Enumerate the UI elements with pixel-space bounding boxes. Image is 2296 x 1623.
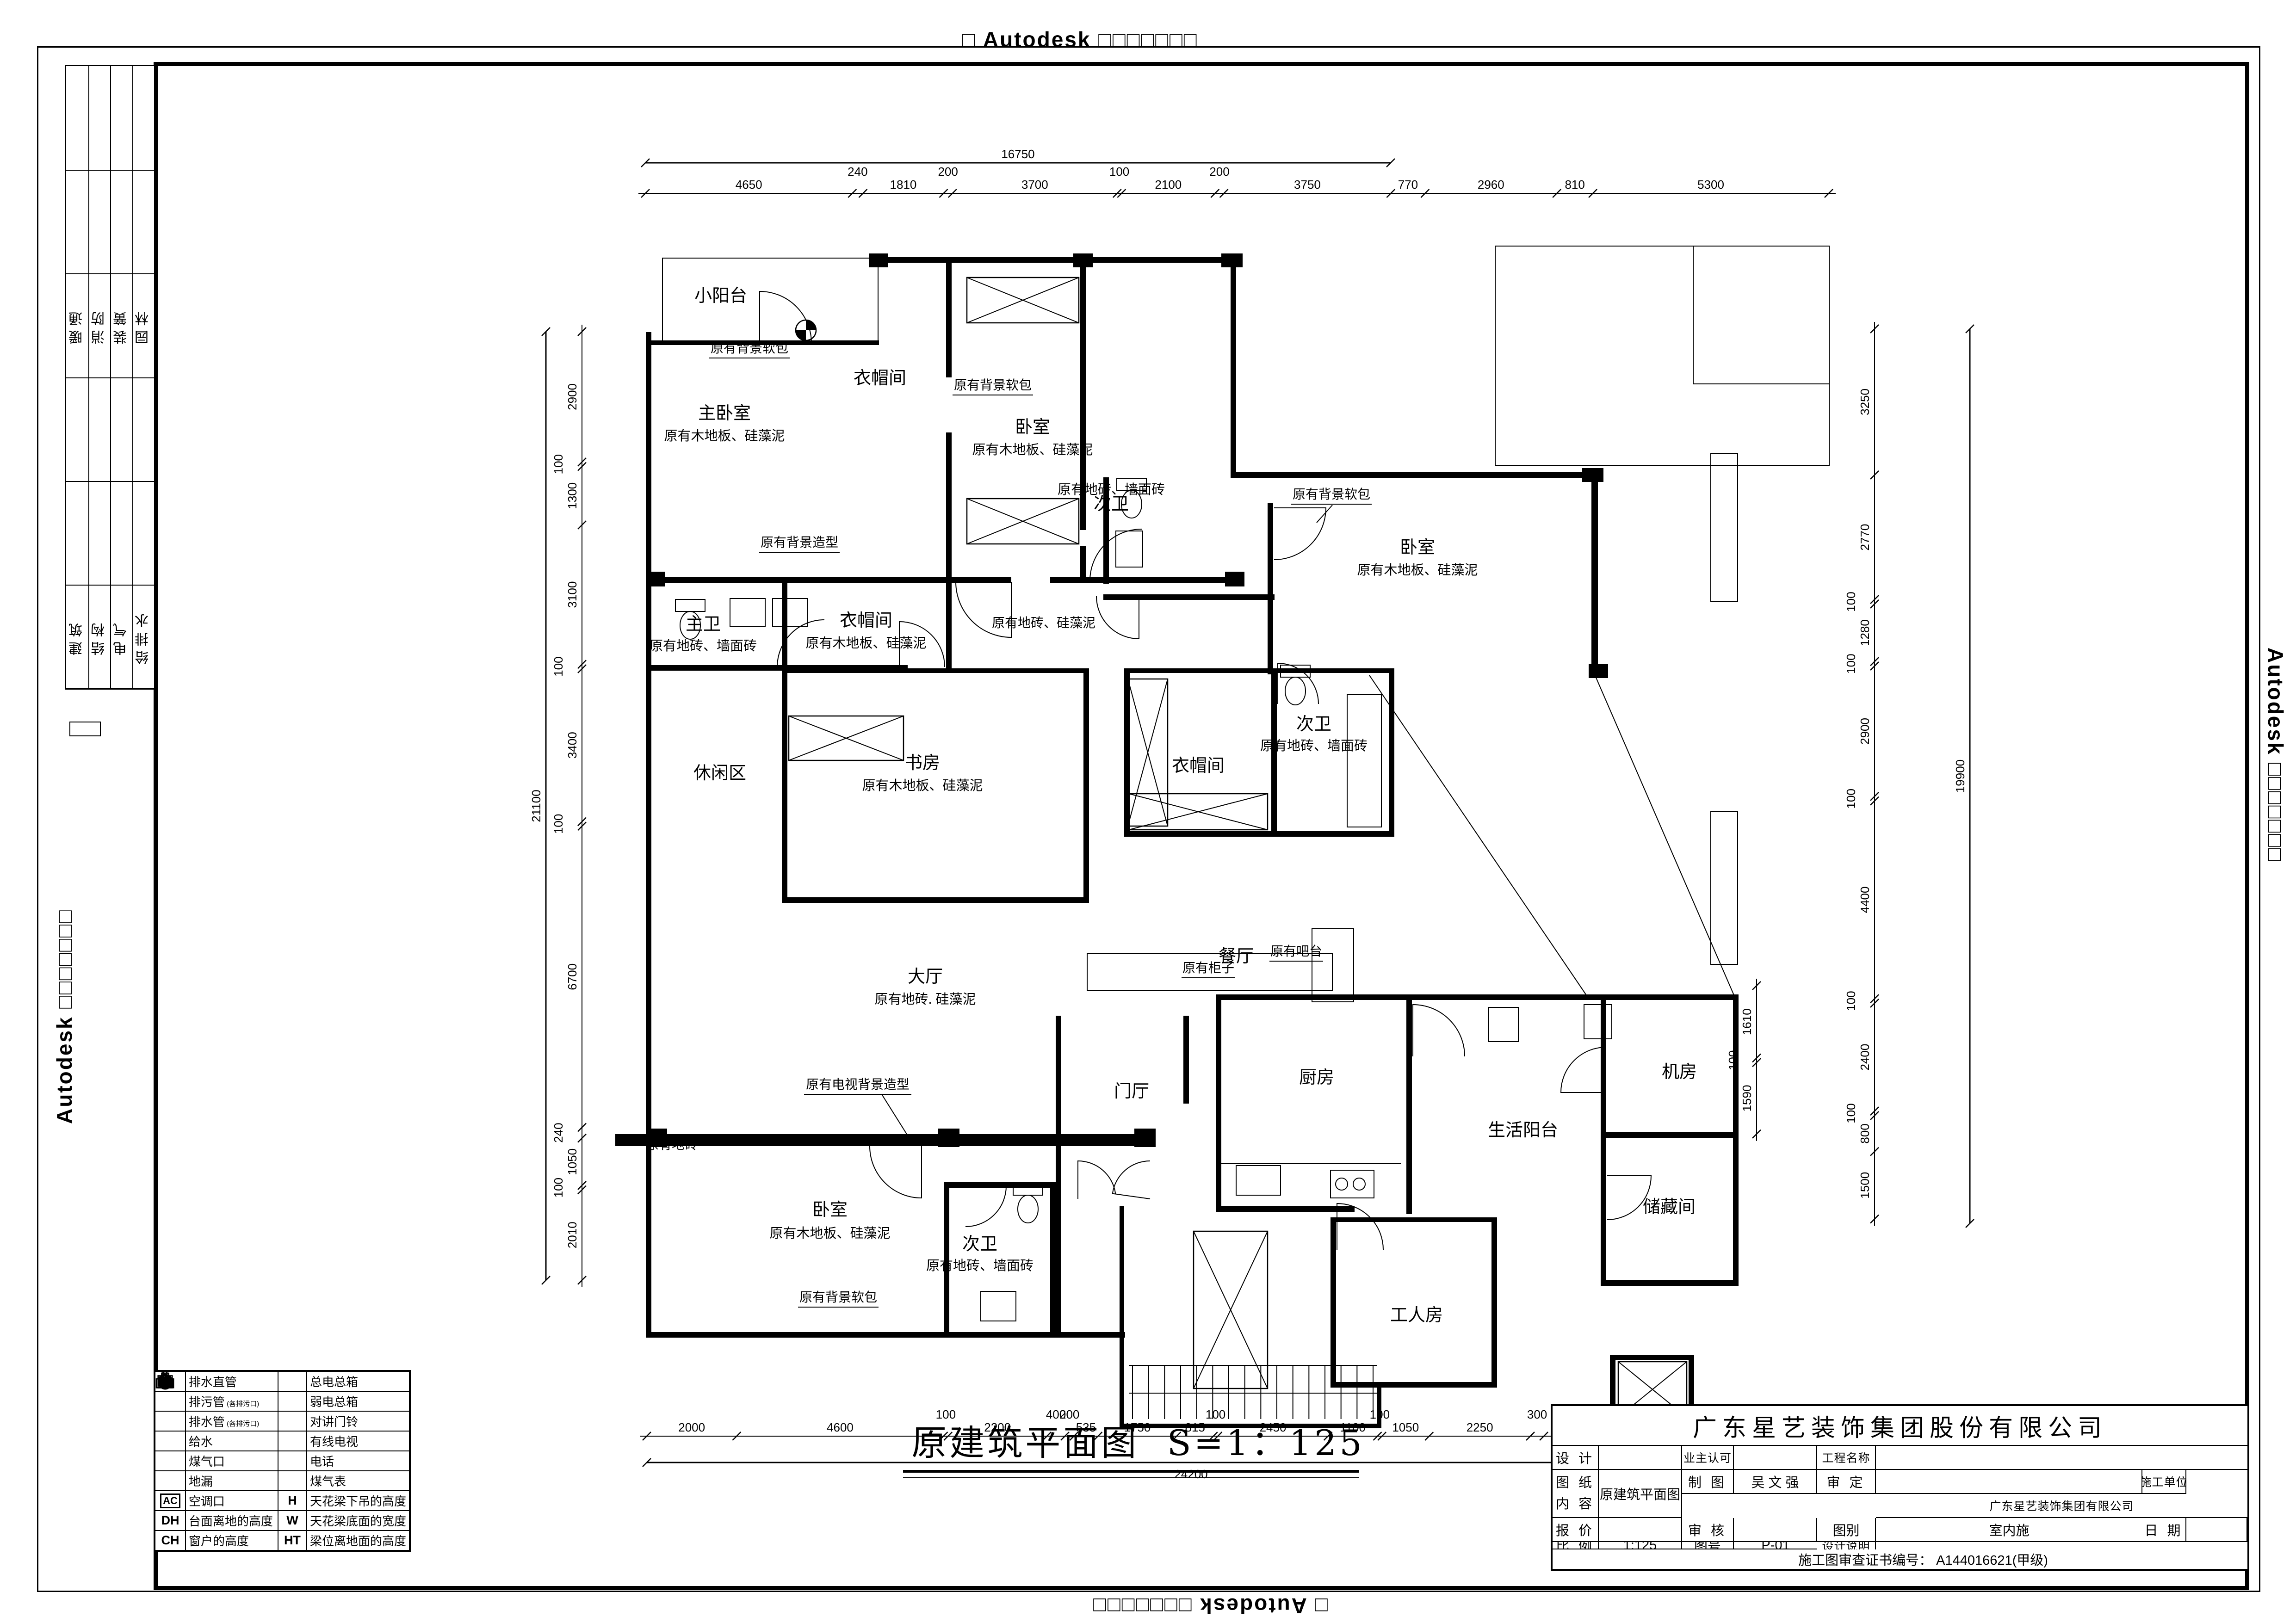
gasmeter-legend-icon bbox=[278, 1471, 307, 1491]
category-label: 图别 bbox=[1817, 1518, 1876, 1542]
wall bbox=[1589, 664, 1608, 678]
dim-value: 2100 bbox=[1155, 178, 1182, 191]
floordrain-legend-icon bbox=[155, 1471, 186, 1491]
dim-value: 1500 bbox=[1858, 1172, 1872, 1199]
wall bbox=[1050, 577, 1238, 583]
plan-line bbox=[1594, 673, 1735, 997]
dim-value: 3750 bbox=[1294, 178, 1321, 191]
room-label: 小阳台 bbox=[694, 286, 747, 306]
wall bbox=[1601, 1132, 1739, 1138]
dim-value: 300 bbox=[1527, 1407, 1547, 1421]
title-block: 广东星艺装饰集团股份有限公司 设 计 业主认可 工程名称 制 图 吴 文 强 审… bbox=[1551, 1404, 2249, 1571]
room-label: 卧室 bbox=[1015, 418, 1050, 437]
dim-value: 810 bbox=[1565, 178, 1584, 191]
thin-structure bbox=[1236, 1166, 1281, 1195]
date-label: 日 期 bbox=[2142, 1518, 2186, 1542]
dim-value: 1810 bbox=[890, 178, 917, 191]
category-value: 室内施 bbox=[1876, 1518, 2142, 1542]
legend-label: 台面离地的高度 bbox=[186, 1511, 278, 1530]
legend-label: 天花梁底面的宽度 bbox=[307, 1511, 410, 1530]
dim-total-value: 16750 bbox=[1001, 147, 1034, 161]
wall bbox=[1183, 1016, 1189, 1104]
door-swing bbox=[870, 1146, 922, 1198]
legend-label: 天花梁下吊的高度 bbox=[307, 1491, 410, 1511]
sheet-content-label: 图 纸内 容 bbox=[1553, 1470, 1599, 1518]
wall bbox=[946, 583, 952, 671]
dim-value: 2960 bbox=[1478, 178, 1504, 191]
toilet-tank bbox=[675, 599, 705, 611]
dim-value: 100 bbox=[1844, 1103, 1858, 1123]
room-finish-label: 原有地砖、墙面砖 bbox=[650, 638, 757, 654]
wall bbox=[1389, 668, 1394, 836]
legend-label: 煤气口 bbox=[186, 1451, 278, 1471]
dim-value: 3100 bbox=[565, 581, 579, 608]
dim-value: 3400 bbox=[565, 732, 579, 759]
ch-legend-icon: CH bbox=[155, 1530, 186, 1551]
wall bbox=[1331, 1382, 1497, 1388]
dim-value: 5300 bbox=[1697, 178, 1724, 191]
dim-value: 2900 bbox=[1858, 718, 1872, 745]
room-finish-label: 原有木地板、硅藻泥 bbox=[972, 442, 1093, 457]
room-label: 厨房 bbox=[1299, 1068, 1334, 1087]
room-label: 卧室 bbox=[812, 1200, 848, 1220]
catv-legend-icon bbox=[278, 1431, 307, 1451]
dim-value: 1610 bbox=[1740, 1008, 1754, 1035]
wall bbox=[1406, 994, 1412, 1214]
dim-value: 2770 bbox=[1858, 524, 1872, 551]
thin-structure bbox=[981, 1291, 1016, 1321]
room-finish-label: 原有地砖、墙面砖 bbox=[1058, 482, 1165, 497]
wall bbox=[938, 1129, 959, 1147]
approve-value bbox=[1876, 1470, 2142, 1494]
quote-label: 报 价 bbox=[1553, 1518, 1599, 1542]
pipe2-legend-icon bbox=[155, 1391, 186, 1411]
dh-legend-icon: DH bbox=[155, 1511, 186, 1530]
room-label: 衣帽间 bbox=[854, 369, 906, 388]
room-label: 大厅 bbox=[908, 967, 943, 987]
wall bbox=[1124, 831, 1394, 837]
toilet-bowl bbox=[1285, 677, 1306, 705]
cert-no: 施工图审查证书编号： A144016621(甲级) bbox=[1599, 1549, 2247, 1569]
drain-symbol-fill bbox=[806, 320, 816, 330]
thin-structure bbox=[1116, 531, 1143, 567]
room-label: 卧室 bbox=[1400, 538, 1435, 557]
wall bbox=[646, 583, 651, 1134]
legend-label: 排水直管 bbox=[186, 1371, 278, 1391]
legend-label: 给水 bbox=[186, 1431, 278, 1451]
door-swing bbox=[1561, 1047, 1606, 1092]
room-label: 生活阳台 bbox=[1488, 1121, 1558, 1140]
legend-label: 电话 bbox=[307, 1451, 410, 1471]
legend-label: 梁位离地面的高度 bbox=[307, 1530, 410, 1551]
design-note-label: 设计说明 bbox=[1817, 1542, 1876, 1549]
dim-total-value: 21100 bbox=[529, 790, 543, 822]
dim-value: 3700 bbox=[1021, 178, 1048, 191]
doorbell-legend-icon bbox=[278, 1411, 307, 1431]
wall bbox=[1601, 1280, 1739, 1286]
wall bbox=[1124, 668, 1394, 673]
wall bbox=[646, 572, 665, 586]
owner-approve-label: 业主认可 bbox=[1682, 1446, 1734, 1470]
dim-value: 4400 bbox=[1858, 887, 1872, 913]
dim-value: 200 bbox=[1209, 165, 1229, 179]
wall bbox=[1225, 572, 1244, 586]
thin-structure bbox=[1711, 453, 1738, 601]
dim-value: 2000 bbox=[678, 1420, 705, 1434]
wall bbox=[869, 253, 888, 267]
thin-structure bbox=[1347, 695, 1381, 827]
owner-approve-value bbox=[1734, 1446, 1817, 1470]
phone-legend-icon bbox=[278, 1451, 307, 1471]
plan-note: 原有柜子 bbox=[1182, 961, 1234, 975]
wall bbox=[1268, 503, 1273, 674]
dim-value: 3250 bbox=[1858, 389, 1872, 415]
dim-total-value: 24200 bbox=[1174, 1467, 1207, 1481]
plan-note: 原有背景软包 bbox=[1293, 487, 1370, 501]
room-label: 次卫 bbox=[1296, 715, 1331, 734]
dim-value: 770 bbox=[1398, 178, 1418, 191]
ac-legend-icon: AC bbox=[155, 1491, 186, 1511]
room-finish-label: 原有木地板、硅藻泥 bbox=[862, 778, 983, 793]
wall bbox=[947, 1332, 1057, 1338]
dim-value: 1300 bbox=[565, 482, 579, 509]
water-legend-icon bbox=[155, 1431, 186, 1451]
title-underline-thick bbox=[903, 1470, 1359, 1473]
wall bbox=[1216, 1206, 1355, 1212]
thin-structure bbox=[1489, 1007, 1518, 1042]
plan-note: 原有吧台 bbox=[1270, 944, 1322, 958]
legend-label: 窗户的高度 bbox=[186, 1530, 278, 1551]
drawing-scale-text: S=1：125 bbox=[1167, 1422, 1365, 1463]
wall bbox=[1221, 253, 1243, 267]
plan-line bbox=[882, 1094, 907, 1134]
dim-value: 100 bbox=[551, 1178, 565, 1197]
plan-note: 原有背景软包 bbox=[954, 378, 1032, 392]
thin-structure bbox=[1711, 812, 1738, 964]
room-label: 机房 bbox=[1662, 1062, 1697, 1082]
meterM-legend-icon: M bbox=[278, 1371, 307, 1391]
thin-structure bbox=[730, 599, 765, 626]
wall bbox=[1591, 472, 1598, 673]
wall bbox=[876, 257, 1234, 263]
thin-structure bbox=[1331, 1170, 1374, 1198]
wall bbox=[1331, 1217, 1497, 1222]
dim-value: 800 bbox=[1858, 1123, 1872, 1143]
room-label: 休闲区 bbox=[693, 764, 746, 783]
wall bbox=[1610, 1355, 1693, 1360]
project-value bbox=[1876, 1446, 2247, 1470]
dim-value: 100 bbox=[1844, 592, 1858, 611]
design-label: 设 计 bbox=[1553, 1446, 1599, 1470]
date-value bbox=[2186, 1518, 2247, 1542]
wall bbox=[646, 577, 1011, 583]
room-finish-label: 原有木地板、硅藻泥 bbox=[664, 428, 785, 444]
room-label: 主卫 bbox=[686, 615, 721, 634]
stove-burner bbox=[1353, 1178, 1365, 1190]
quote-value bbox=[1599, 1518, 1682, 1542]
legend-label: 排污管 (各排污口) bbox=[186, 1391, 278, 1411]
dim-total-value: 19900 bbox=[1953, 759, 1967, 793]
scale-label: 比 例 bbox=[1553, 1542, 1599, 1549]
plan-note: 原有地砖 bbox=[646, 1137, 698, 1152]
wall bbox=[1056, 1210, 1061, 1338]
drawing-title-text: 原建筑平面图 bbox=[911, 1422, 1139, 1463]
wall bbox=[1216, 994, 1221, 1212]
room-label: 书房 bbox=[905, 753, 940, 773]
w-legend-icon: W bbox=[278, 1511, 307, 1530]
room-label: 储藏间 bbox=[1643, 1197, 1696, 1217]
wall bbox=[782, 583, 787, 671]
dim-value: 100 bbox=[551, 656, 565, 676]
wall bbox=[782, 897, 1089, 903]
room-finish-label: 原有木地板、硅藻泥 bbox=[769, 1226, 890, 1241]
room-label: 工人房 bbox=[1390, 1306, 1443, 1325]
dim-value: 100 bbox=[1109, 165, 1129, 179]
dim-value: 100 bbox=[551, 814, 565, 834]
room-label: 主卧室 bbox=[698, 404, 751, 423]
room-finish-label: 原有木地板、硅藻泥 bbox=[1357, 562, 1478, 578]
room-finish-label: 原有木地板、硅藻泥 bbox=[805, 636, 926, 651]
wall bbox=[782, 668, 1089, 673]
room-label: 衣帽间 bbox=[840, 611, 892, 630]
wall bbox=[1231, 472, 1597, 478]
design-value bbox=[1599, 1446, 1682, 1470]
wall bbox=[946, 257, 952, 377]
wall bbox=[1491, 1217, 1497, 1388]
room-label: 次卫 bbox=[962, 1234, 997, 1254]
wall bbox=[1231, 257, 1236, 477]
project-label: 工程名称 bbox=[1817, 1446, 1876, 1470]
thin-structure bbox=[1495, 246, 1829, 465]
legend-label: 总电总箱 bbox=[307, 1371, 410, 1391]
sheet-no-value: P-01 bbox=[1734, 1542, 1817, 1549]
builder-value: 广东星艺装饰集团有限公司 bbox=[1876, 1494, 2247, 1518]
wall bbox=[1331, 1217, 1336, 1388]
legend-label: 空调口 bbox=[186, 1491, 278, 1511]
dim-value: 100 bbox=[1844, 654, 1858, 673]
plan-note: 原有电视背景造型 bbox=[806, 1077, 910, 1092]
room-finish-label: 原有地砖、墙面砖 bbox=[1260, 738, 1368, 753]
dim-value: 6700 bbox=[565, 963, 579, 990]
wall bbox=[646, 1134, 651, 1338]
legend-table: 排水直管M总电总箱排污管 (各排污口)L弱电总箱排水管 (各排污口)对讲门铃给水… bbox=[154, 1370, 411, 1552]
stove-burner bbox=[1336, 1178, 1348, 1190]
dim-value: 2010 bbox=[565, 1222, 579, 1248]
pipe3-legend-icon bbox=[155, 1411, 186, 1431]
wall bbox=[1083, 668, 1089, 902]
wall bbox=[1073, 253, 1093, 267]
door-swing bbox=[1078, 1161, 1115, 1199]
door-swing bbox=[1096, 596, 1139, 639]
wall bbox=[1103, 594, 1275, 600]
meterL-legend-icon: L bbox=[278, 1391, 307, 1411]
h-legend-icon: H bbox=[278, 1491, 307, 1511]
sheet-content-value: 原建筑平面图 bbox=[1599, 1470, 1682, 1518]
room-finish-label: 原有地砖. 硅藻泥 bbox=[874, 992, 976, 1007]
wall bbox=[1080, 546, 1086, 583]
dim-value: 1590 bbox=[1740, 1085, 1754, 1112]
dim-value: 1050 bbox=[565, 1148, 579, 1175]
wall bbox=[1216, 994, 1739, 1000]
wall bbox=[1056, 1016, 1061, 1210]
audit-value bbox=[1734, 1518, 1817, 1542]
dim-value: 2250 bbox=[1467, 1420, 1493, 1434]
door-swing bbox=[1113, 1161, 1150, 1199]
dim-value: 100 bbox=[1726, 1050, 1740, 1070]
title-underline-thin bbox=[903, 1477, 1359, 1478]
legend-label: 对讲门铃 bbox=[307, 1411, 410, 1431]
dim-value: 2900 bbox=[565, 383, 579, 410]
wall bbox=[782, 668, 787, 902]
drawing-sheet: { "watermarks":{ "top":"□ Autodesk □□□□□… bbox=[0, 0, 2296, 1623]
room-label: 衣帽间 bbox=[1172, 756, 1225, 776]
scale-value: 1:125 bbox=[1599, 1542, 1682, 1549]
wall bbox=[1056, 1332, 1125, 1338]
draft-label: 制 图 bbox=[1682, 1470, 1734, 1494]
wall bbox=[1134, 1129, 1156, 1147]
wall bbox=[1582, 468, 1603, 482]
drain-symbol-fill bbox=[796, 330, 806, 340]
sheet-no-label: 图号 bbox=[1682, 1542, 1734, 1549]
plan-note: 原有地砖、硅藻泥 bbox=[992, 616, 1095, 630]
plan-note: 原有背景软包 bbox=[711, 341, 788, 355]
room-label: 次卫 bbox=[1094, 494, 1129, 514]
wall bbox=[1733, 1000, 1739, 1286]
dim-value: 100 bbox=[551, 454, 565, 474]
dim-value: 240 bbox=[551, 1123, 565, 1142]
legend-label: 排水管 (各排污口) bbox=[186, 1411, 278, 1431]
legend-label: 地漏 bbox=[186, 1471, 278, 1491]
dim-value: 4600 bbox=[827, 1420, 854, 1434]
door-swing bbox=[1274, 508, 1326, 560]
approve-label: 审 定 bbox=[1817, 1470, 1876, 1494]
wall bbox=[1120, 1206, 1124, 1428]
legend-label: 有线电视 bbox=[307, 1431, 410, 1451]
wall bbox=[1601, 1000, 1606, 1286]
thin-structure bbox=[1584, 1005, 1612, 1039]
wall bbox=[946, 432, 952, 583]
wall bbox=[646, 1332, 949, 1338]
plan-line bbox=[1369, 675, 1588, 997]
door-swing bbox=[1413, 1005, 1465, 1056]
dim-value: 1280 bbox=[1858, 619, 1872, 646]
dim-value: 200 bbox=[938, 165, 958, 179]
dim-value: 100 bbox=[1844, 789, 1858, 808]
thin-structure bbox=[773, 599, 808, 626]
dim-value: 2400 bbox=[1858, 1044, 1872, 1071]
dim-value: 4650 bbox=[736, 178, 762, 191]
room-finish-label: 原有地砖、墙面砖 bbox=[926, 1258, 1034, 1273]
builder-label: 施工单位 bbox=[2142, 1470, 2186, 1494]
gasport-legend-icon bbox=[155, 1451, 186, 1471]
plan-note: 原有背景软包 bbox=[799, 1290, 877, 1304]
dim-value: 100 bbox=[1844, 991, 1858, 1011]
drawing-title: 原建筑平面图 S=1：125 bbox=[870, 1414, 1406, 1465]
legend-label: 弱电总箱 bbox=[307, 1391, 410, 1411]
ht-legend-icon: HT bbox=[278, 1530, 307, 1551]
dim-value: 240 bbox=[848, 165, 867, 179]
room-label: 门厅 bbox=[1114, 1082, 1149, 1101]
toilet-bowl bbox=[1018, 1195, 1038, 1223]
plan-note: 原有背景造型 bbox=[761, 535, 838, 549]
wall bbox=[646, 332, 651, 583]
company-name: 广东星艺装饰集团股份有限公司 bbox=[1553, 1406, 2247, 1446]
drafter: 吴 文 强 bbox=[1734, 1470, 1817, 1494]
legend-label: 煤气表 bbox=[307, 1471, 410, 1491]
audit-label: 审 核 bbox=[1682, 1518, 1734, 1542]
door-swing bbox=[965, 1186, 1006, 1227]
wall bbox=[1050, 1182, 1056, 1338]
